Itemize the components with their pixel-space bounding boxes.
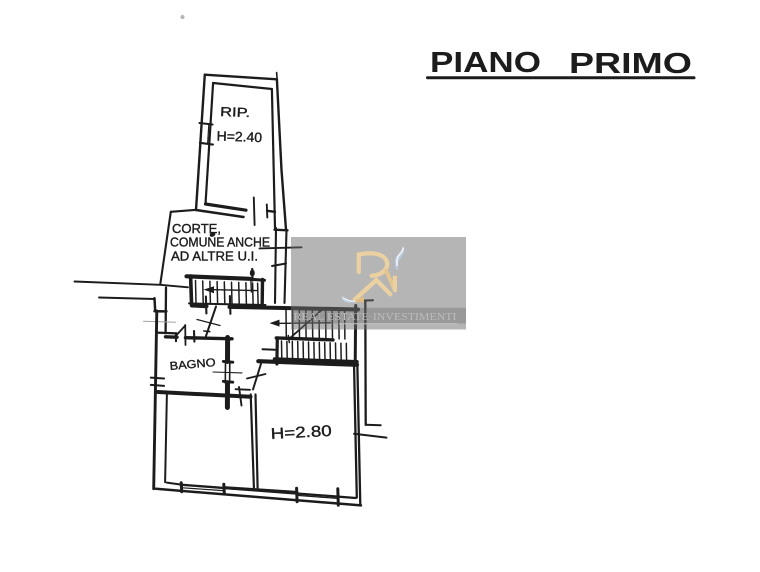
svg-text:H=2.80: H=2.80 xyxy=(270,423,332,443)
svg-text:PIANO: PIANO xyxy=(430,47,541,79)
svg-text:REAL ESTATE·INVESTIMENTI: REAL ESTATE·INVESTIMENTI xyxy=(294,311,457,323)
svg-text:BAGNO: BAGNO xyxy=(169,357,216,373)
svg-text:RIP.: RIP. xyxy=(220,104,251,120)
svg-text:COMUNE ANCHE: COMUNE ANCHE xyxy=(170,236,270,250)
svg-text:AD ALTRE U.I.: AD ALTRE U.I. xyxy=(171,250,258,264)
svg-text:CORTE,: CORTE, xyxy=(172,222,221,236)
svg-text:PRIMO: PRIMO xyxy=(569,48,692,80)
svg-text:H=2.40: H=2.40 xyxy=(216,129,262,146)
